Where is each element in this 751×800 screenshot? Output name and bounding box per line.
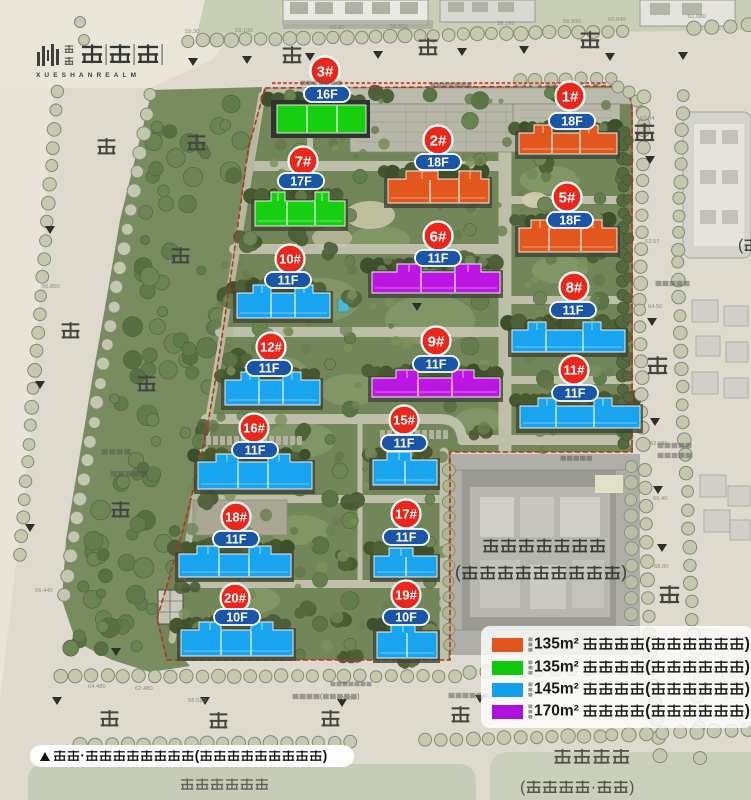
svg-text:(: ( (455, 562, 461, 582)
svg-text:56.800: 56.800 (42, 284, 60, 290)
svg-text:64.480: 64.480 (88, 684, 106, 690)
svg-text:11F: 11F (563, 304, 584, 318)
svg-text:62.57: 62.57 (645, 239, 660, 245)
svg-text:): ) (745, 680, 750, 697)
svg-text:59.100: 59.100 (235, 28, 253, 34)
svg-text:16F: 16F (316, 88, 338, 102)
svg-text:17#: 17# (395, 507, 417, 522)
svg-text:): ) (323, 748, 328, 763)
svg-text:10#: 10# (279, 252, 301, 267)
svg-text:): ) (745, 635, 750, 652)
svg-text:11F: 11F (245, 444, 266, 458)
svg-text:11F: 11F (226, 533, 247, 547)
svg-text:11#: 11# (564, 363, 586, 378)
svg-text:): ) (357, 694, 359, 701)
svg-text:56.440: 56.440 (35, 588, 53, 594)
svg-text:(: ( (645, 680, 651, 697)
svg-text:70.660: 70.660 (338, 696, 356, 702)
svg-text:59.30: 59.30 (185, 29, 200, 35)
svg-text:11F: 11F (426, 358, 447, 372)
svg-text:58.530: 58.530 (188, 698, 206, 704)
svg-text:170m²: 170m² (534, 702, 579, 719)
svg-text:2#: 2# (430, 132, 447, 149)
svg-text:(: ( (645, 702, 651, 719)
svg-text:17F: 17F (290, 175, 312, 189)
svg-text:61.080: 61.080 (688, 14, 706, 20)
svg-text:16#: 16# (243, 421, 265, 436)
svg-text:5#: 5# (559, 189, 576, 206)
svg-text:11F: 11F (259, 362, 280, 376)
svg-text:62.980: 62.980 (650, 441, 668, 447)
svg-text:): ) (621, 562, 627, 582)
svg-text:62.84: 62.84 (640, 116, 655, 122)
svg-text:10F: 10F (226, 611, 248, 625)
svg-text:15#: 15# (393, 413, 415, 428)
svg-text:66.40: 66.40 (653, 496, 668, 502)
svg-text:9#: 9# (428, 333, 445, 350)
svg-text:11F: 11F (394, 437, 415, 451)
svg-text:68.00: 68.00 (654, 564, 669, 570)
svg-text:7#: 7# (295, 153, 312, 170)
svg-text:XUESHANREALM: XUESHANREALM (36, 72, 140, 79)
svg-text:6#: 6# (430, 228, 447, 245)
svg-text:(: ( (520, 779, 526, 796)
svg-text:19#: 19# (395, 588, 417, 603)
svg-text:8#: 8# (566, 279, 583, 296)
svg-text:(: ( (645, 658, 651, 675)
svg-text:): ) (629, 779, 634, 796)
svg-text:(: ( (195, 748, 200, 763)
svg-text:10F: 10F (395, 611, 417, 625)
svg-text:11F: 11F (278, 274, 299, 288)
svg-text:·: · (591, 779, 596, 796)
svg-text:18F: 18F (561, 115, 583, 129)
svg-text:(: ( (738, 237, 744, 254)
svg-text:58.160: 58.160 (497, 21, 515, 27)
svg-text:58.900: 58.900 (563, 19, 581, 25)
svg-text:60.80: 60.80 (330, 25, 345, 31)
svg-text:145m²: 145m² (534, 680, 579, 697)
svg-text:135m²: 135m² (534, 635, 579, 652)
svg-text:58.820: 58.820 (390, 24, 408, 30)
svg-text:18F: 18F (559, 214, 581, 228)
svg-text:18#: 18# (225, 510, 247, 525)
svg-text:135m²: 135m² (534, 658, 579, 675)
svg-text:62.480: 62.480 (135, 686, 153, 692)
svg-text:3#: 3# (317, 63, 334, 80)
svg-text:·: · (80, 748, 85, 763)
svg-text:): ) (745, 702, 750, 719)
svg-text:(: ( (645, 635, 651, 652)
svg-text:64.50: 64.50 (648, 304, 663, 310)
svg-text:): ) (745, 658, 750, 675)
svg-text:18F: 18F (427, 156, 449, 170)
svg-text:1#: 1# (562, 88, 579, 105)
svg-text:12#: 12# (260, 340, 282, 355)
svg-text:11F: 11F (396, 531, 417, 545)
svg-text:20#: 20# (224, 591, 246, 606)
svg-text:60.840: 60.840 (608, 17, 626, 23)
svg-text:11F: 11F (428, 252, 449, 266)
svg-text:11F: 11F (565, 387, 586, 401)
